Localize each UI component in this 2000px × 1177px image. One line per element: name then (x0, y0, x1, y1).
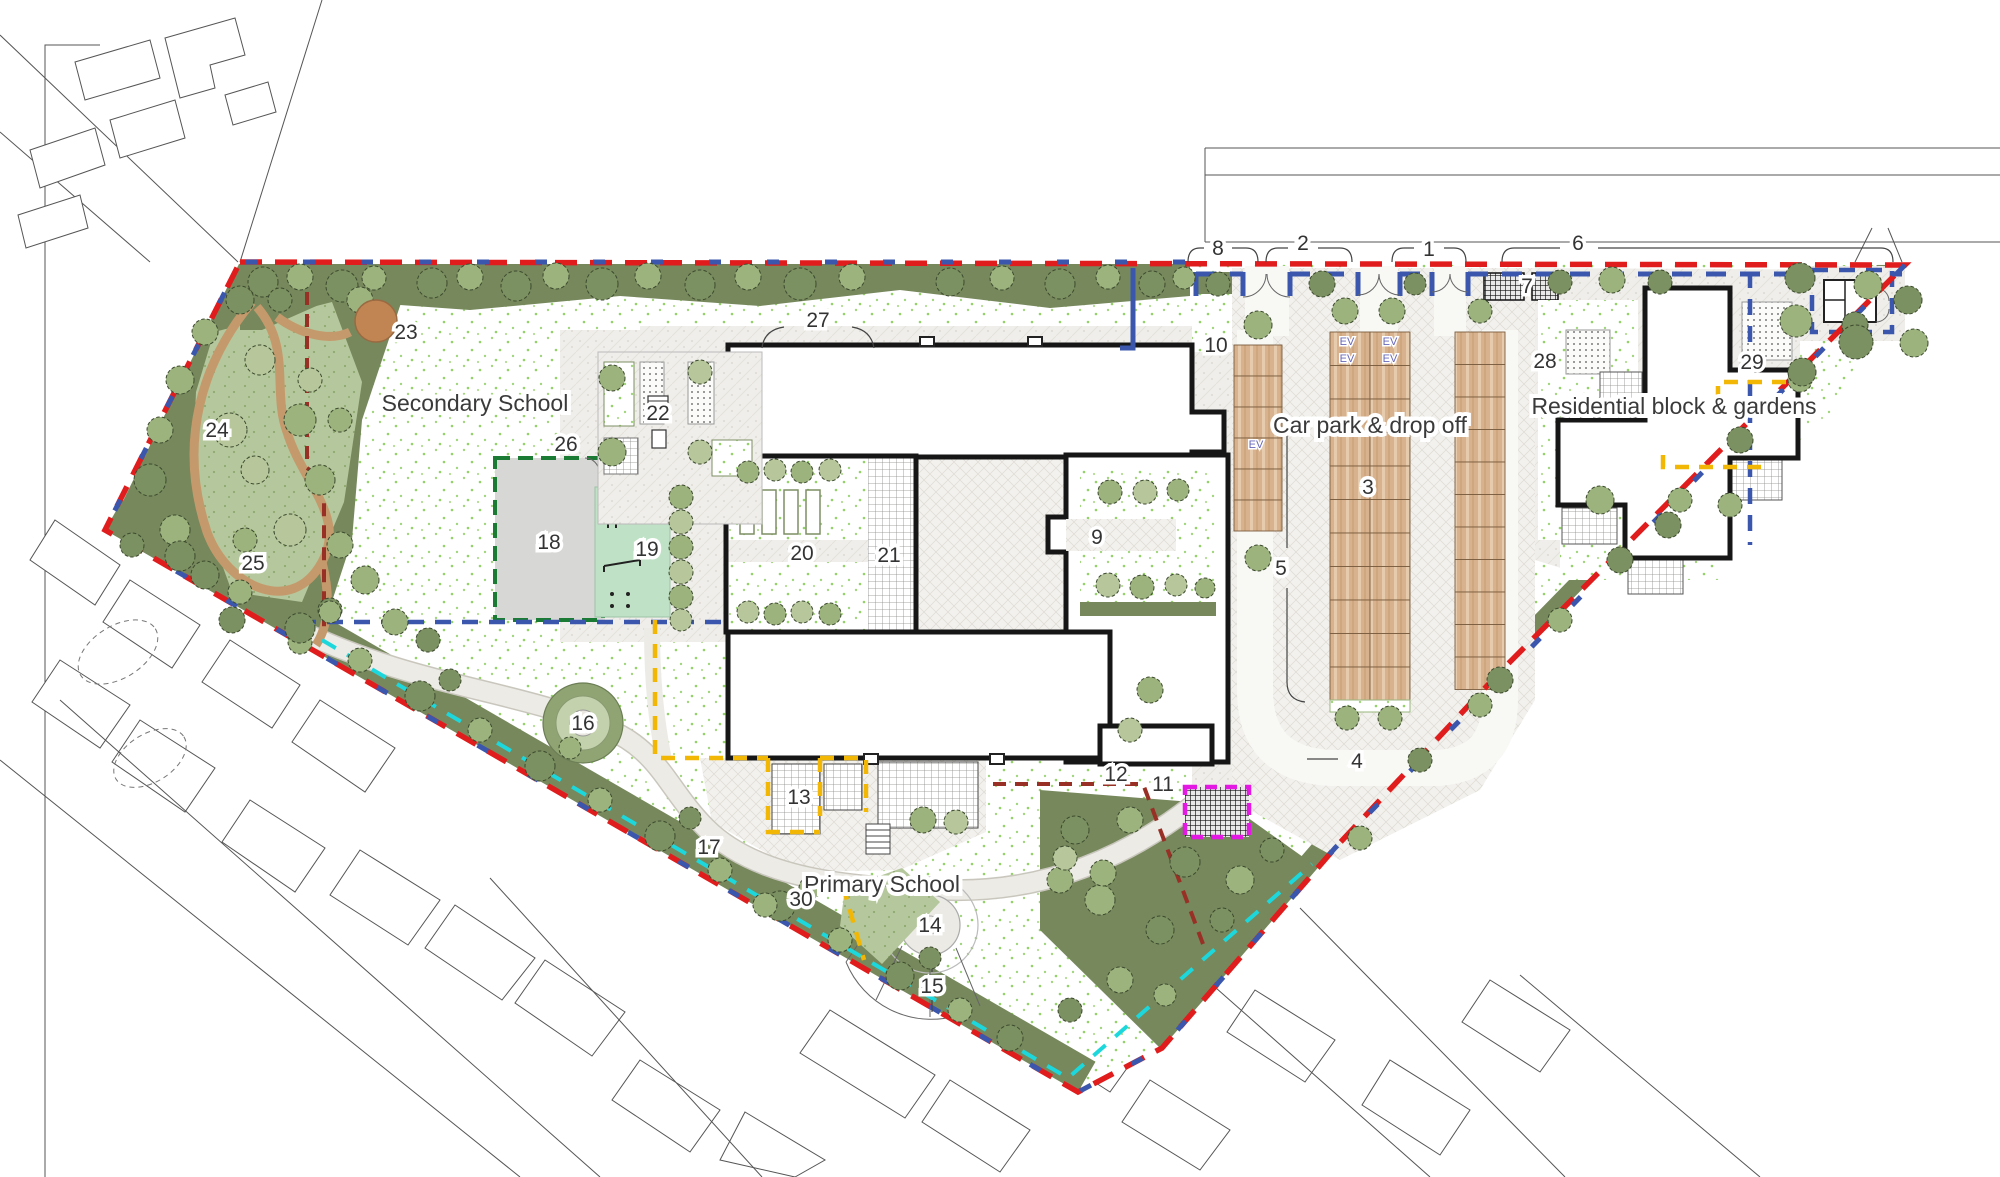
tree-icon (1348, 826, 1372, 850)
tree-icon (416, 628, 440, 652)
ev-bay-label: EV (1383, 336, 1398, 348)
parking-bay (1370, 500, 1410, 534)
tree-icon (1788, 358, 1816, 386)
parking-bay (1370, 634, 1410, 668)
tree-icon (819, 459, 841, 481)
plan-number-25: 25 (241, 552, 264, 575)
tree-icon (1487, 667, 1513, 693)
tree-icon (1195, 578, 1215, 598)
plan-number-28: 28 (1533, 350, 1556, 373)
tree-icon (1599, 267, 1625, 293)
tree-icon (543, 263, 569, 289)
plan-number-24: 24 (205, 419, 229, 442)
ev-bay-label: EV (1340, 336, 1355, 348)
tree-icon (1085, 885, 1115, 915)
tree-icon (1244, 311, 1272, 339)
tree-icon (586, 268, 618, 300)
tree-icon (1210, 908, 1234, 932)
tree-icon (1655, 512, 1681, 538)
parking-bay (1330, 567, 1370, 601)
tree-icon (219, 607, 245, 633)
tree-icon (1137, 677, 1163, 703)
tree-icon (1607, 547, 1633, 573)
parking-bay (1330, 600, 1370, 634)
plan-number-20: 20 (790, 542, 813, 565)
tree-icon (688, 440, 712, 464)
tree-icon (1379, 298, 1405, 324)
tree-icon (669, 535, 693, 559)
tree-icon (287, 264, 313, 290)
tree-icon (1096, 573, 1120, 597)
tree-icon (679, 807, 701, 829)
tree-icon (1139, 271, 1165, 297)
ev-bay-label: EV (1383, 353, 1398, 365)
tree-icon (559, 737, 581, 759)
plan-number-11: 11 (1152, 773, 1174, 796)
ev-bay-label: EV (1249, 439, 1264, 451)
tree-icon (382, 609, 408, 635)
parking-bay (1455, 365, 1505, 398)
tree-icon (819, 603, 841, 625)
parking-bay (1455, 560, 1505, 593)
tree-icon (735, 264, 761, 290)
tree-icon (305, 465, 335, 495)
plan-number-23: 23 (394, 321, 417, 344)
parking-bay (1455, 332, 1505, 365)
tree-icon (285, 613, 315, 643)
plan-number-12: 12 (1104, 763, 1127, 786)
plan-number-16: 16 (571, 712, 594, 735)
tree-icon (1648, 270, 1672, 294)
tree-icon (1718, 493, 1742, 517)
tree-icon (457, 264, 483, 290)
tree-icon (1404, 273, 1426, 295)
tree-icon (1047, 867, 1073, 893)
parking-bay (1455, 527, 1505, 560)
tree-icon (147, 417, 173, 443)
tree-icon (298, 368, 322, 392)
tree-icon (1146, 916, 1174, 944)
tree-icon (1117, 807, 1143, 833)
parking-bay (1234, 376, 1282, 407)
parking-bay (1330, 500, 1370, 534)
plan-number-9: 9 (1091, 526, 1103, 549)
tree-icon (1090, 860, 1116, 886)
tree-icon (120, 533, 144, 557)
tree-icon (1167, 479, 1189, 501)
tree-icon (669, 585, 693, 609)
tree-icon (439, 669, 461, 691)
tree-icon (1130, 575, 1154, 599)
parking-bay (1234, 500, 1282, 531)
tree-icon (1096, 265, 1120, 289)
tree-icon (886, 962, 914, 990)
tree-icon (1548, 270, 1572, 294)
plan-number-6: 6 (1572, 232, 1584, 255)
parking-bay (1455, 462, 1505, 495)
plan-number-27: 27 (806, 309, 829, 332)
tree-icon (753, 893, 777, 917)
parking-bay (1370, 366, 1410, 400)
plan-number-22: 22 (646, 402, 669, 425)
tree-icon (1468, 299, 1492, 323)
tree-icon (1727, 427, 1753, 453)
tree-icon (241, 456, 269, 484)
tree-icon (936, 268, 964, 296)
tree-icon (784, 268, 816, 300)
tree-icon (166, 366, 194, 394)
plan-number-30: 30 (789, 888, 812, 911)
tree-icon (417, 268, 447, 298)
parking-bay (1370, 567, 1410, 601)
tree-icon (1133, 480, 1157, 504)
tree-icon (1378, 706, 1402, 730)
parking-bay (1330, 533, 1370, 567)
tree-icon (245, 345, 275, 375)
tree-icon (160, 515, 190, 545)
tree-icon (791, 601, 813, 623)
tree-icon (1245, 545, 1271, 571)
plan-number-18: 18 (537, 531, 560, 554)
tree-icon (669, 510, 693, 534)
tree-icon (599, 365, 625, 391)
plan-number-5: 5 (1275, 557, 1287, 580)
plan-number-15: 15 (920, 975, 943, 998)
tree-icon (501, 271, 531, 301)
tree-icon (1045, 269, 1075, 299)
plan-number-19: 19 (635, 538, 658, 561)
tree-icon (1061, 816, 1089, 844)
tree-icon (670, 609, 692, 631)
tree-icon (1332, 298, 1358, 324)
tree-icon (944, 810, 968, 834)
plan-number-8: 8 (1212, 237, 1224, 260)
site-plan-canvas: Secondary School Primary School Car park… (0, 0, 2000, 1177)
plan-number-7: 7 (1521, 275, 1533, 298)
tree-icon (828, 928, 852, 952)
tree-icon (405, 681, 435, 711)
tree-icon (685, 270, 715, 300)
tree-icon (1785, 263, 1815, 293)
tree-icon (688, 360, 712, 384)
tree-icon (348, 648, 372, 672)
plan-number-1: 1 (1423, 238, 1435, 261)
plan-number-26: 26 (554, 433, 577, 456)
tree-icon (1206, 272, 1230, 296)
tree-icon (764, 603, 786, 625)
tree-icon (1335, 706, 1359, 730)
label-secondary-school: Secondary School (382, 390, 569, 416)
tree-icon (226, 286, 254, 314)
tree-icon (268, 288, 292, 312)
bin-store (1185, 787, 1249, 837)
parking-bay (1234, 469, 1282, 500)
tree-icon (1058, 998, 1082, 1022)
tree-icon (669, 485, 693, 509)
parking-bay (1455, 592, 1505, 625)
tree-icon (1154, 984, 1176, 1006)
site-plan: Secondary School Primary School Car park… (0, 0, 2000, 1177)
tree-icon (274, 514, 306, 546)
tree-icon (598, 438, 626, 466)
label-car-park: Car park & drop off (1273, 412, 1468, 438)
tree-icon (468, 718, 492, 742)
tree-icon (319, 601, 341, 623)
tree-icon (948, 998, 972, 1022)
tree-icon (1260, 838, 1284, 862)
parking-bay (1330, 634, 1370, 668)
tree-icon (839, 264, 865, 290)
tree-icon (910, 807, 936, 833)
plan-number-2: 2 (1297, 232, 1309, 255)
plan-number-14: 14 (918, 914, 942, 937)
tree-icon (1900, 329, 1928, 357)
cycle-store (1484, 273, 1524, 300)
tree-icon (1780, 305, 1812, 337)
tree-icon (990, 266, 1014, 290)
tree-icon (525, 751, 555, 781)
tree-icon (919, 947, 941, 969)
parking-bay (1330, 366, 1370, 400)
tree-icon (791, 461, 813, 483)
tree-icon (997, 1025, 1023, 1051)
tree-icon (351, 566, 379, 594)
tree-icon (1408, 748, 1432, 772)
parking-bay (1455, 625, 1505, 658)
tree-icon (1170, 847, 1200, 877)
tree-icon (1173, 267, 1195, 289)
parking-bay (1234, 345, 1282, 376)
entrance-court (1066, 519, 1176, 551)
tree-icon (233, 528, 257, 552)
secondary-school-building (728, 345, 1224, 457)
tree-icon (1548, 608, 1572, 632)
parking-bay (1330, 667, 1370, 701)
tree-icon (328, 408, 352, 432)
tree-icon (737, 601, 759, 623)
tree-icon (1468, 693, 1492, 717)
tree-icon (635, 263, 661, 289)
tree-icon (669, 560, 693, 584)
tree-icon (1107, 967, 1133, 993)
tree-icon (362, 266, 386, 290)
tree-icon (737, 461, 759, 483)
tree-icon (134, 464, 166, 496)
parking-bay (1370, 466, 1410, 500)
tree-icon (192, 319, 218, 345)
tree-icon (588, 788, 612, 812)
plan-number-29: 29 (1740, 351, 1763, 374)
tree-icon (1839, 325, 1873, 359)
parking-bay (1370, 600, 1410, 634)
tree-icon (708, 858, 732, 882)
parking-bay (1370, 667, 1410, 701)
tree-icon (1668, 488, 1692, 512)
tree-icon (284, 404, 316, 436)
plan-number-13: 13 (787, 786, 810, 809)
plan-number-17: 17 (697, 836, 720, 859)
label-primary-school: Primary School (804, 871, 960, 897)
tree-icon (1053, 846, 1077, 870)
ev-bay-label: EV (1340, 353, 1355, 365)
tree-icon (1118, 718, 1142, 742)
tree-icon (327, 532, 353, 558)
tree-mound (355, 300, 397, 342)
tree-icon (1098, 480, 1122, 504)
plan-number-3: 3 (1362, 476, 1374, 499)
parking-bay (1370, 533, 1410, 567)
tree-icon (1165, 574, 1187, 596)
tree-icon (228, 580, 252, 604)
tree-icon (1894, 286, 1922, 314)
plan-number-21: 21 (877, 544, 900, 567)
plan-number-4: 4 (1351, 750, 1363, 773)
tree-icon (645, 821, 675, 851)
plan-number-10: 10 (1204, 334, 1227, 357)
tree-icon (1586, 486, 1614, 514)
tree-icon (764, 459, 786, 481)
tree-icon (1309, 271, 1335, 297)
parking-bay (1455, 495, 1505, 528)
tree-icon (1854, 271, 1882, 299)
tree-icon (191, 561, 219, 589)
label-residential: Residential block & gardens (1531, 393, 1816, 419)
tree-icon (1226, 866, 1254, 894)
tree-icon (165, 541, 195, 571)
primary-school-building (728, 632, 1110, 758)
